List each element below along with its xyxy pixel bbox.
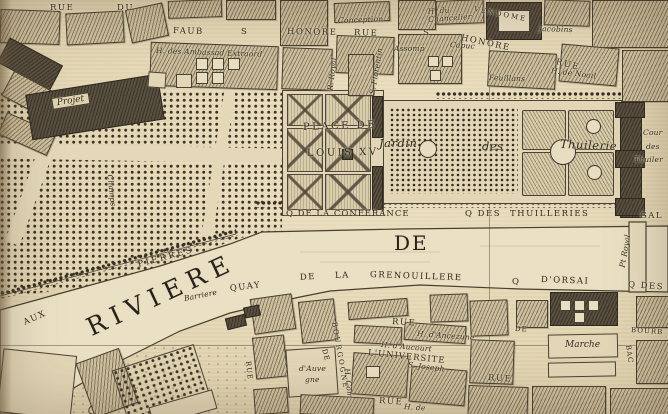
street-label: FAUB <box>173 26 204 37</box>
quai-label: Q <box>512 277 520 287</box>
convent-label: Assomp <box>394 44 425 53</box>
garden-label: Jardin <box>379 136 417 150</box>
antique-paris-map: RUE DU FAUB S HONORE RUE Conception H. d… <box>0 0 668 414</box>
street-label: DE <box>515 325 528 333</box>
marche-label: Marche <box>565 340 600 350</box>
hotel-label: d'Auve <box>299 364 326 373</box>
cour-label: des <box>646 142 660 151</box>
convent-label: Conception <box>338 14 384 25</box>
garden-label: Thuilerie <box>560 137 618 153</box>
quai-label: Q DES <box>465 209 501 219</box>
quai-label: D'ORSAI <box>541 275 590 287</box>
river-name-de: DE <box>394 231 429 255</box>
quai-label: GAL <box>640 211 663 221</box>
cour-label: Thuiler <box>634 155 663 164</box>
hotel-label: gne <box>305 375 320 384</box>
street-label: RUE <box>379 396 404 408</box>
convent-label: Jacobins <box>539 24 573 34</box>
quai-label: DE <box>300 272 317 283</box>
garden-label: des <box>482 139 504 153</box>
convent-label: Feuillans <box>489 73 526 83</box>
quai-label: THUILLERIES <box>510 209 589 219</box>
street-label: RUE <box>488 373 513 385</box>
street-label: RUE <box>392 317 417 329</box>
street-label: RUE <box>50 3 74 13</box>
street-label: DU <box>117 3 134 13</box>
street-label: S <box>241 27 248 37</box>
street-label: S <box>423 28 430 38</box>
cour-label: Cour <box>643 128 662 137</box>
street-label: HONORE <box>287 27 338 38</box>
street-label: RUE <box>354 28 379 39</box>
hotel-label: H. de <box>404 402 426 412</box>
quai-label: Q DE LA CONFERANCE <box>286 209 410 219</box>
quai-label: LA <box>335 270 350 281</box>
place-louis-xv-label: LOUIS XV <box>307 147 379 159</box>
convent-label: Capuc <box>450 40 476 51</box>
